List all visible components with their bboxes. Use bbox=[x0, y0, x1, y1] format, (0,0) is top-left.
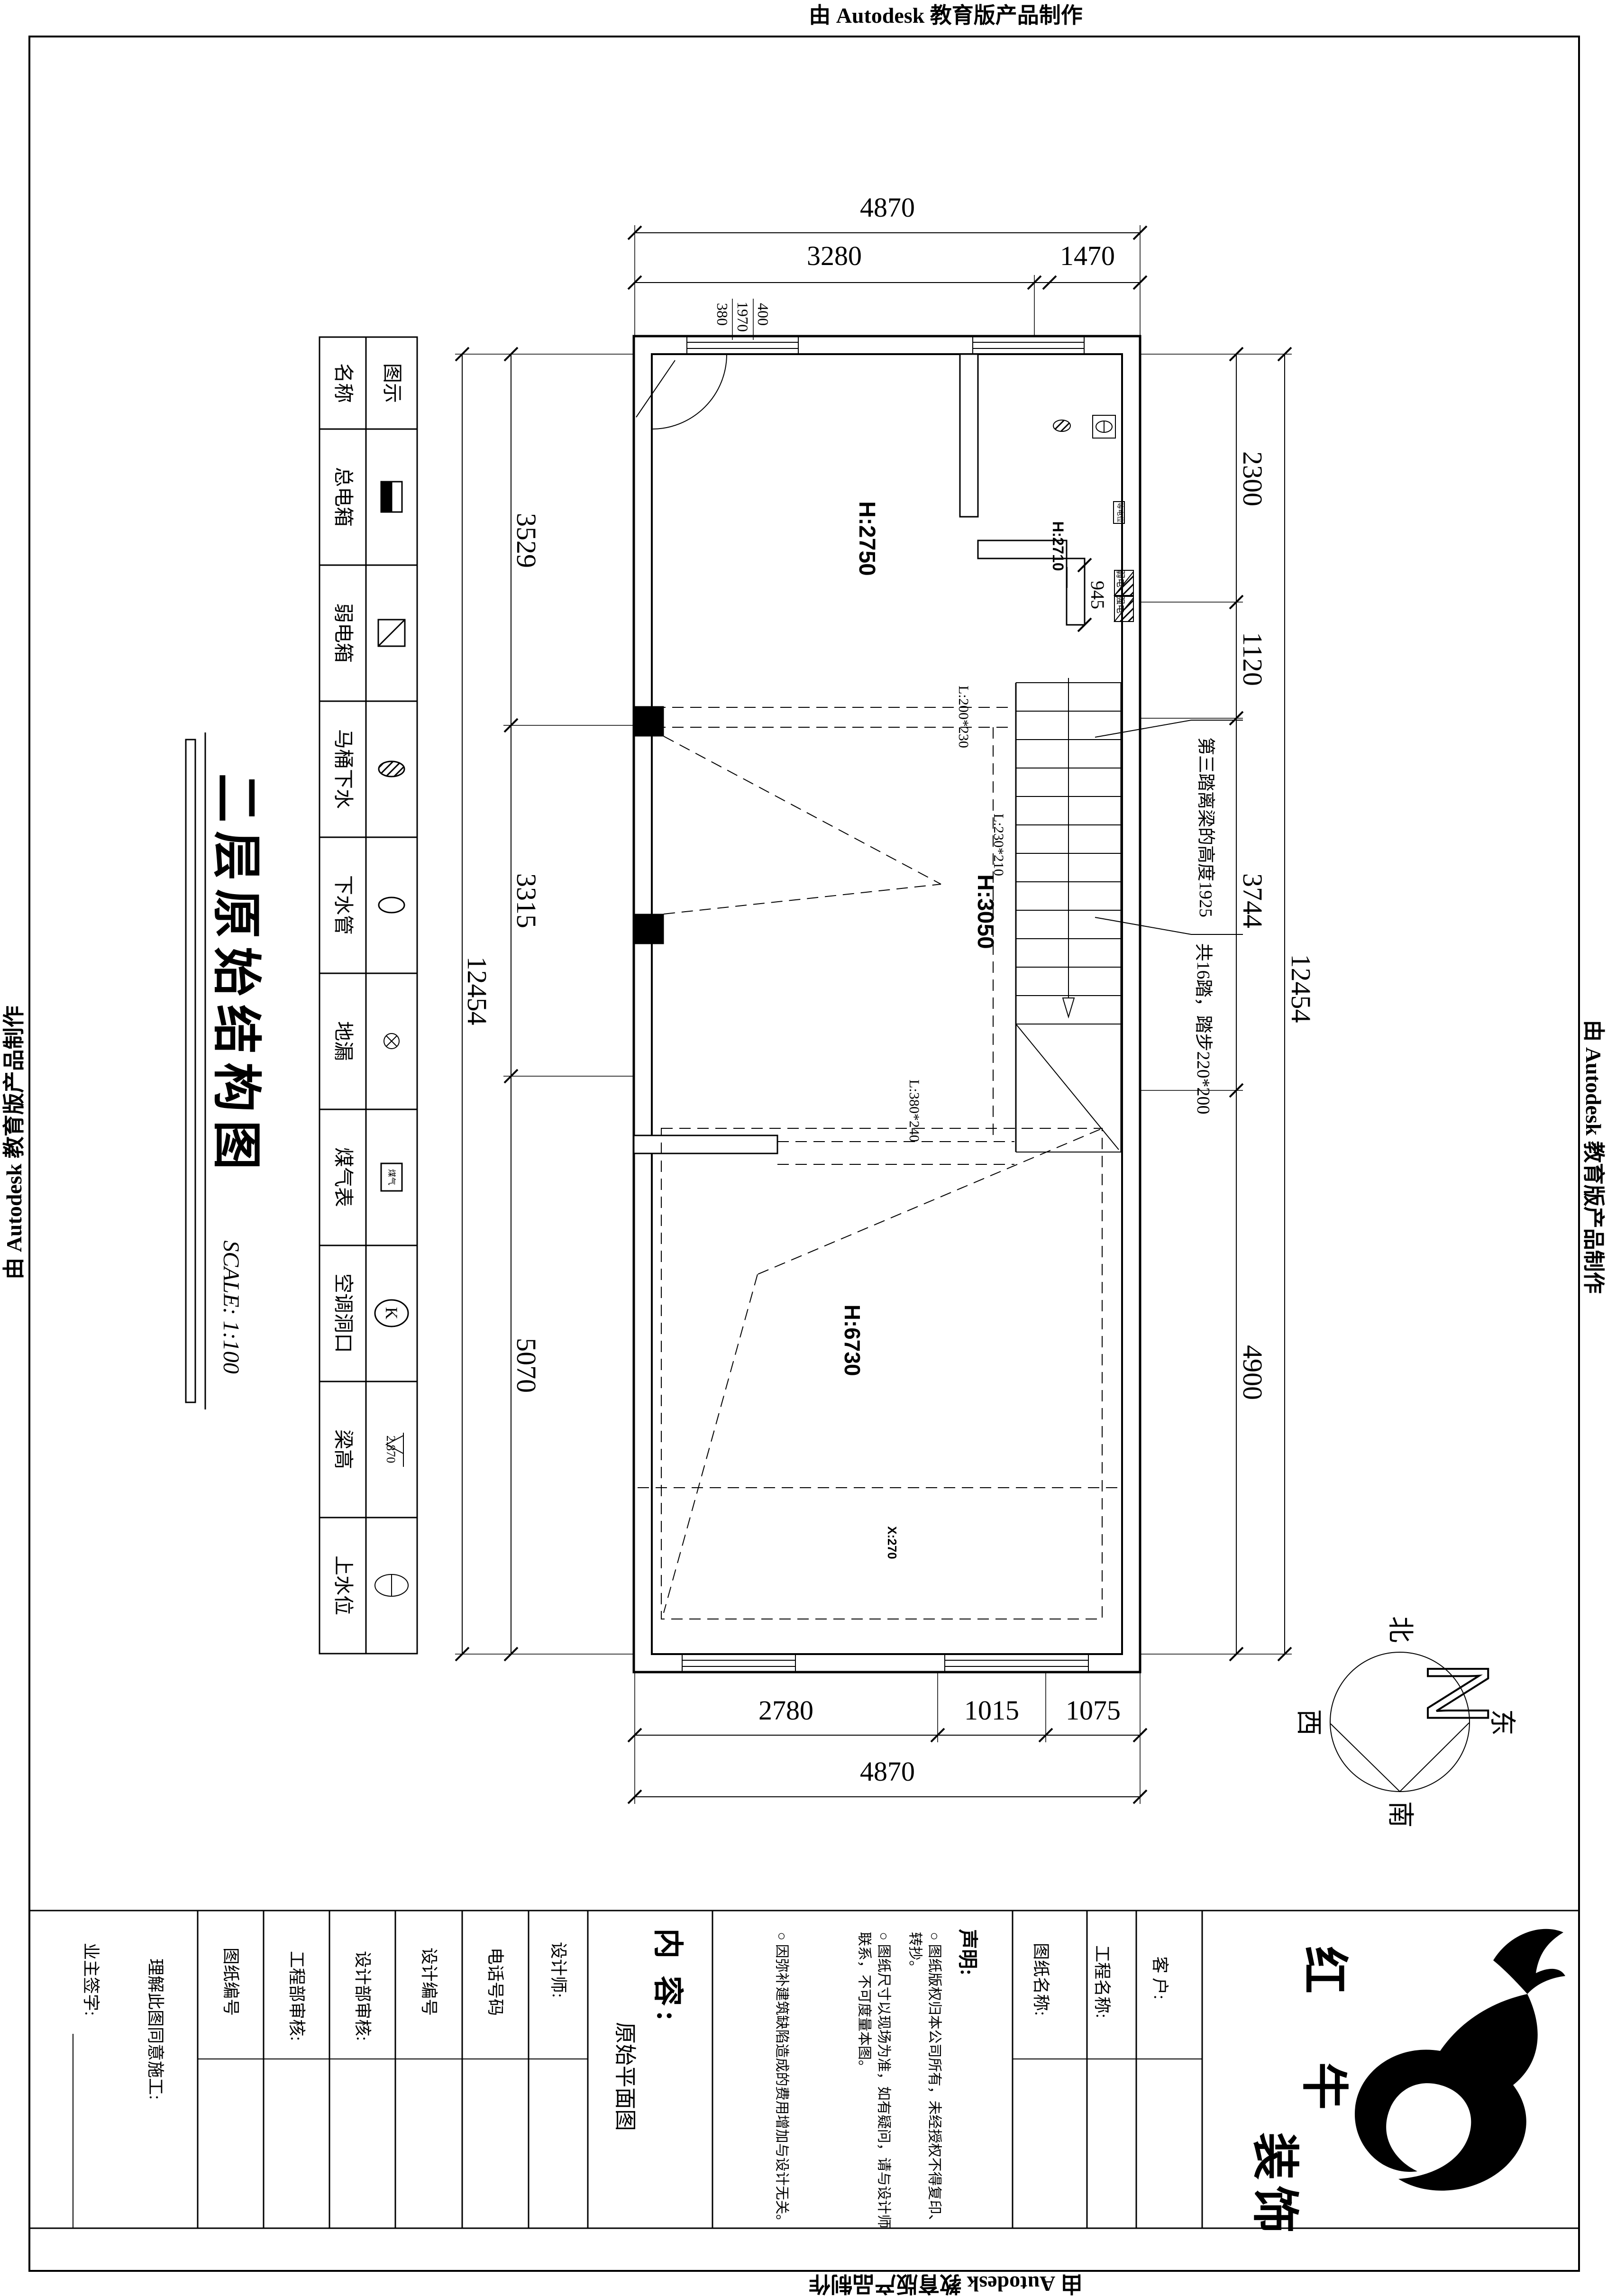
window-bottom-right bbox=[945, 1654, 1088, 1672]
designer-label: 设计师: bbox=[550, 1942, 567, 1998]
strong-electric-label: 强电 bbox=[1116, 595, 1125, 613]
dim-bottom-overall: 4870 bbox=[860, 1758, 915, 1785]
watermark-bottom: 由 Autodesk 教育版产品制作 bbox=[809, 2273, 1083, 2295]
winder-diagonal bbox=[1016, 1024, 1119, 1150]
owner-sign-label: 业主签字: bbox=[82, 1943, 100, 2016]
window-top-left bbox=[687, 336, 798, 354]
phone-label: 电话号码 bbox=[487, 1948, 504, 2016]
bull-logo bbox=[1355, 1929, 1565, 2191]
eng-audit-label: 工程部审核: bbox=[288, 1951, 305, 2041]
compass-north: 北 bbox=[1387, 1616, 1413, 1643]
equipotential-label: 等电位 bbox=[1116, 503, 1123, 522]
brand-char: 牛 bbox=[1300, 2062, 1347, 2110]
dim-bottom-seg: 2780 bbox=[758, 1697, 813, 1724]
dim-left-seg: 5070 bbox=[512, 1338, 540, 1393]
brand-char: 装 bbox=[1251, 2132, 1298, 2180]
dim-top-sub: 380 bbox=[715, 303, 730, 326]
main-electric-box-icon bbox=[381, 482, 402, 512]
drawing-name-label: 图纸名称: bbox=[1032, 1943, 1050, 2016]
legend-row-label: 空调洞口 bbox=[333, 1273, 353, 1353]
toilet-drain-symbol bbox=[1053, 420, 1070, 431]
wall-mid-bottom bbox=[634, 1135, 777, 1153]
room-label-x270: X:270 bbox=[886, 1526, 898, 1559]
dim-right-overall: 12454 bbox=[1287, 954, 1315, 1023]
page-scale: SCALE: 1:100 bbox=[219, 1240, 242, 1373]
beam-label: L:380*240 bbox=[907, 1079, 921, 1142]
legend-row-label: 煤气表 bbox=[333, 1147, 353, 1207]
dim-right-seg: 2300 bbox=[1239, 451, 1266, 506]
water-supply-icon bbox=[375, 1574, 408, 1596]
dim-top-seg: 1470 bbox=[1060, 242, 1115, 270]
design-audit-label: 设计部审核: bbox=[354, 1951, 371, 2041]
beam-label: L:230*210 bbox=[991, 814, 1005, 876]
window-top-right bbox=[973, 336, 1084, 354]
dim-left-seg: 3529 bbox=[512, 513, 540, 568]
cad-sheet: { "watermark": "由 Autodesk 教育版产品制作", "dr… bbox=[0, 0, 1607, 2296]
watermark-left: 由 Autodesk 教育版产品制作 bbox=[3, 1006, 25, 1280]
statement-item: ○ 图纸尺寸以现场为准，如有疑问，请与设计师联系，不可度量本图。 bbox=[855, 1932, 893, 2235]
beam-label: L:200*230 bbox=[956, 686, 970, 748]
stair-note-2: 共16踏，踏步220*200 bbox=[1194, 943, 1212, 1114]
legend-row-label: 弱电箱 bbox=[333, 603, 353, 663]
dim-right-seg: 4900 bbox=[1239, 1345, 1266, 1400]
dim-bottom-seg: 1075 bbox=[1066, 1697, 1121, 1724]
title-underline bbox=[186, 732, 205, 1409]
column-2 bbox=[634, 914, 664, 944]
toilet-drain-icon bbox=[379, 761, 404, 777]
compass-west: 西 bbox=[1295, 1709, 1322, 1736]
content-label: 内 容: bbox=[652, 1928, 683, 2025]
stair-down-arrow bbox=[1063, 998, 1074, 1017]
weak-electric-label: 弱电 bbox=[1116, 569, 1125, 587]
dim-bottom-seg: 1015 bbox=[964, 1697, 1019, 1724]
room-label-h6730: H:6730 bbox=[841, 1305, 863, 1376]
ac-hole-icon-text: K bbox=[383, 1307, 400, 1319]
room-label-h2710: H:2710 bbox=[1050, 521, 1066, 571]
compass-south: 南 bbox=[1387, 1801, 1413, 1828]
dim-left-seg: 3315 bbox=[512, 873, 540, 928]
watermark-top: 由 Autodesk 教育版产品制作 bbox=[809, 5, 1083, 27]
door-arc bbox=[636, 354, 727, 429]
wall-a bbox=[960, 354, 978, 517]
gas-meter-icon-text: 煤气 bbox=[388, 1169, 396, 1185]
compass-east: 东 bbox=[1488, 1709, 1515, 1736]
dim-top-sub: 1970 bbox=[735, 302, 750, 332]
statement-title: 声明: bbox=[957, 1929, 977, 1976]
client-label: 客 户: bbox=[1151, 1956, 1169, 1999]
room-label-h2750: H:2750 bbox=[855, 501, 878, 576]
legend-row-label: 下水管 bbox=[333, 875, 353, 935]
content-value: 原始平面图 bbox=[614, 2022, 636, 2131]
floor-drain-icon bbox=[384, 1034, 399, 1049]
statement-item: ○ 因弥补建筑缺陷造成的费用增加与设计无关。 bbox=[772, 1932, 791, 2235]
dim-top-seg: 3280 bbox=[807, 242, 862, 270]
watermark-right: 由 Autodesk 教育版产品制作 bbox=[1582, 1020, 1604, 1294]
weak-electric-box-icon bbox=[378, 620, 405, 646]
stair-note-1: 第三踏离梁的高度1925 bbox=[1196, 737, 1214, 917]
dim-right-seg: 1120 bbox=[1239, 632, 1266, 686]
dim-top-sub: 400 bbox=[756, 303, 771, 326]
column-1 bbox=[634, 706, 664, 736]
legend-row-label: 地漏 bbox=[333, 1021, 353, 1061]
drawing-no-label: 图纸编号 bbox=[222, 1948, 239, 2016]
page-title: 二层原始结构图 bbox=[211, 773, 260, 1178]
beam-height-icon-text: 2.870 bbox=[384, 1436, 397, 1464]
room-label-h3050: H:3050 bbox=[974, 874, 996, 949]
statement-item: ○ 图纸版权归本公司所有，未经授权不得复印、转抄。 bbox=[905, 1932, 944, 2235]
legend-header-icon: 图示 bbox=[382, 363, 402, 403]
legend-icons bbox=[375, 482, 408, 1596]
brand-char: 饰 bbox=[1251, 2186, 1298, 2233]
brand-char: 红 bbox=[1300, 1946, 1347, 1994]
legend-row-label: 马桶下水 bbox=[333, 729, 353, 809]
dim-right-seg: 3744 bbox=[1239, 873, 1266, 928]
legend-row-label: 总电箱 bbox=[333, 467, 353, 527]
legend-header-name: 名称 bbox=[333, 363, 353, 403]
window-bottom-left bbox=[682, 1654, 795, 1672]
legend-row-label: 梁高 bbox=[333, 1429, 353, 1469]
dashed-lines bbox=[638, 707, 1119, 1619]
design-no-label: 设计编号 bbox=[420, 1948, 438, 2016]
dimensions bbox=[455, 225, 1292, 1804]
legend-row-label: 上水位 bbox=[333, 1555, 353, 1615]
note-leaders bbox=[1095, 720, 1243, 934]
project-name-label: 工程名称: bbox=[1094, 1945, 1111, 2018]
dim-passage: 945 bbox=[1088, 581, 1107, 609]
stairs bbox=[1016, 678, 1121, 1152]
dim-top-overall: 4870 bbox=[860, 194, 915, 221]
dim-left-overall: 12454 bbox=[463, 957, 491, 1025]
north-compass: N bbox=[1330, 1652, 1507, 1792]
agree-label: 理解此图同意施工: bbox=[147, 1958, 164, 2100]
drain-pipe-icon bbox=[379, 897, 404, 913]
